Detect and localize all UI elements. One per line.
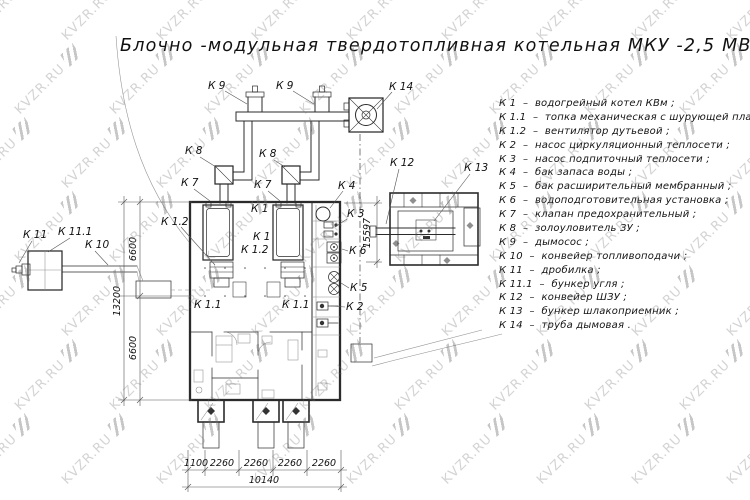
ash-collector-right [282,121,319,203]
label-k7-right: К 7 [254,179,272,191]
expansion-tanks [329,272,340,295]
label-k1-a: К 1 [251,203,268,215]
label-k14: К 14 [389,81,413,93]
legend-item: К 10 – конвейер топливоподачи ; [499,250,749,264]
label-k3: К 3 [347,208,364,220]
dim-left-total: 13200 [112,286,123,316]
label-k1-2-b: К 1.2 [241,244,269,256]
label-k4: К 4 [338,180,355,192]
legend-item: К 4 – бак запаса воды ; [499,166,749,180]
slag-detail-view [370,193,480,265]
legend-item: К 9 – дымосос ; [499,236,749,250]
label-k12: К 12 [390,157,414,169]
label-k9-right: К 9 [276,80,294,92]
legend-item: К 13 – бункер шлакоприемник ; [499,305,749,319]
label-k5: К 5 [350,282,368,294]
label-k1-1-b: К 1.1 [282,299,310,311]
boiler-left [203,202,246,297]
legend-item: К 2 – насос циркуляционный теплосети ; [499,139,749,153]
legend-item: К 1 – водогрейный котел КВм ; [499,97,749,111]
label-k1-1-a: К 1.1 [194,299,222,311]
dim-bottom-0: 1100 [184,458,208,469]
legend-item: К 1.1 – топка механическая с шурующей пл… [499,111,749,125]
legend: К 1 – водогрейный котел КВм ; К 1.1 – то… [499,97,749,333]
smoke-exhauster-right [313,86,331,112]
boiler-right [267,202,304,297]
legend-item: К 11 – дробилка ; [499,264,749,278]
chimney [344,98,383,132]
dim-bottom-4: 2260 [312,458,336,469]
crusher [12,264,30,275]
drawing-title: Блочно -модульная твердотопливная котель… [120,36,720,56]
entrance-modules [198,400,309,448]
smoke-exhauster-left [246,86,264,112]
label-k10: К 10 [85,239,109,251]
dim-bottom-3: 2260 [278,458,302,469]
label-k7-left: К 7 [181,177,199,189]
legend-item: К 7 – клапан предохранительный ; [499,208,749,222]
legend-item: К 8 – золоуловитель ЗУ ; [499,222,749,236]
label-k11-1: К 11.1 [58,226,92,238]
dim-right-height: 15597 [362,218,373,248]
legend-item: К 5 – бак расширительный мембранный ; [499,180,749,194]
label-k2: К 2 [346,301,364,313]
conveyor-ramp [136,281,171,298]
dim-bottom-1: 2260 [210,458,234,469]
legend-item: К 14 – труба дымовая . [499,319,749,333]
dim-left-upper: 6600 [128,237,139,261]
makeup-pumps [324,222,338,237]
label-k9-left: К 9 [208,80,226,92]
dim-bottom-2: 2260 [244,458,268,469]
label-k8-left: К 8 [185,145,203,157]
label-k1-2-a: К 1.2 [161,216,189,228]
label-k8-right: К 8 [259,148,277,160]
legend-item: К 11.1 – бункер угля ; [499,278,749,292]
circulation-pumps [317,302,338,327]
legend-item: К 1.2 – вентилятор дутьевой ; [499,125,749,139]
label-k13: К 13 [464,162,488,174]
legend-item: К 3 – насос подпиточный теплосети ; [499,153,749,167]
dim-left-lower: 6600 [128,336,139,360]
legend-item: К 6 – водоподготовительная установка ; [499,194,749,208]
label-k1-b: К 1 [253,231,270,243]
label-k6: К 6 [349,245,367,257]
flue-system [215,86,383,203]
fuel-feed-system [12,251,210,298]
label-k11: К 11 [23,229,47,241]
dim-bottom-total: 10140 [249,475,279,486]
water-storage-tank [316,207,330,221]
dimensions: 6600 6600 13200 15597 1100 2260 2260 226… [112,196,382,492]
component-labels: К 9 К 9 К 14 К 8 К 8 К 7 К 7 К 4 К 3 К 6… [19,80,488,313]
legend-item: К 12 – конвейер ШЗУ ; [499,291,749,305]
ash-collector-left [215,121,252,203]
